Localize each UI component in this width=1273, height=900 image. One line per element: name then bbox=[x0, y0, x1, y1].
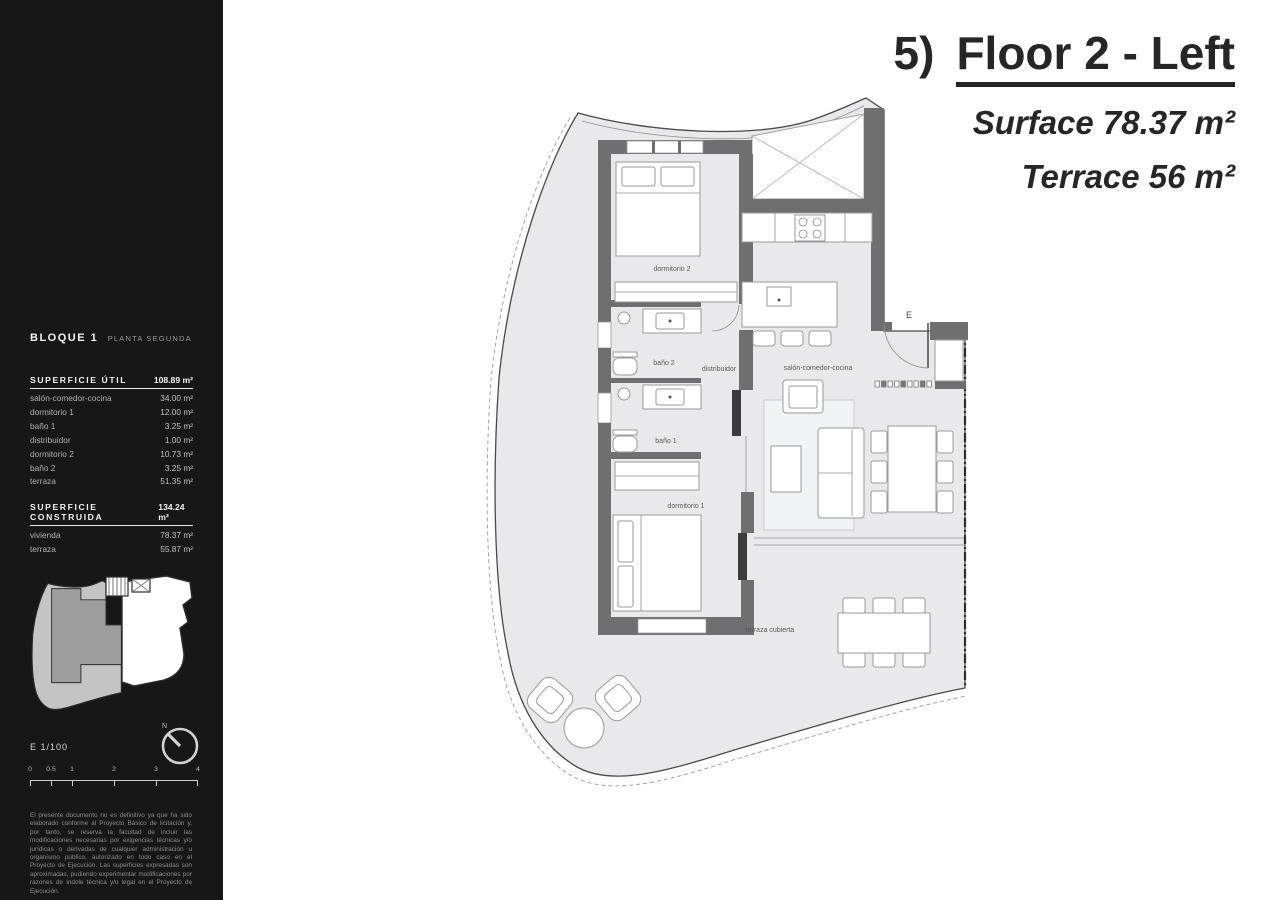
row-name: baño 2 bbox=[30, 462, 55, 476]
row-value: 10.73 m² bbox=[160, 448, 193, 462]
sliding-door-leaf bbox=[732, 390, 741, 436]
bed-dormitorio2 bbox=[616, 162, 700, 256]
row-value: 34.00 m² bbox=[160, 392, 193, 406]
entrance-closet bbox=[935, 340, 963, 381]
legal-disclaimer: El presente documento no es definitivo y… bbox=[30, 812, 192, 896]
scale-tick: 3 bbox=[154, 766, 158, 773]
label-entrance: E bbox=[906, 310, 912, 320]
dining-table-set bbox=[871, 426, 953, 513]
table-row: vivienda78.37 m² bbox=[30, 529, 193, 543]
building-key-plan bbox=[16, 570, 208, 715]
table-header: SUPERFICIE CONSTRUIDA 134.24 m² bbox=[30, 502, 193, 526]
table-title: SUPERFICIE ÚTIL bbox=[30, 375, 127, 385]
row-name: dormitorio 2 bbox=[30, 448, 74, 462]
label-dormitorio2: dormitorio 2 bbox=[654, 266, 691, 273]
north-label: N bbox=[162, 723, 167, 730]
table-row: dormitorio 210.73 m² bbox=[30, 448, 193, 462]
row-name: distribuidor bbox=[30, 434, 71, 448]
scale-tick: 4 bbox=[196, 766, 200, 773]
brochure-page: BLOQUE 1 PLANTA SEGUNDA SUPERFICIE ÚTIL … bbox=[0, 0, 1273, 900]
table-row: salón-comedor-cocina34.00 m² bbox=[30, 392, 193, 406]
row-value: 3.25 m² bbox=[165, 462, 193, 476]
sliding-door-leaf bbox=[738, 533, 747, 580]
block-title: BLOQUE 1 bbox=[30, 332, 98, 344]
label-distribuidor: distribuidor bbox=[702, 366, 737, 373]
kitchen-island bbox=[742, 282, 837, 346]
sidebar: BLOQUE 1 PLANTA SEGUNDA SUPERFICIE ÚTIL … bbox=[0, 0, 223, 900]
table-row: terraza51.35 m² bbox=[30, 475, 193, 489]
scale-tick: 2 bbox=[112, 766, 116, 773]
outdoor-dining-set bbox=[838, 598, 930, 667]
table-total: 134.24 m² bbox=[158, 502, 193, 522]
row-name: vivienda bbox=[30, 529, 60, 543]
table-row: terraza55.87 m² bbox=[30, 543, 193, 557]
block-subtitle: PLANTA SEGUNDA bbox=[108, 334, 192, 343]
armchair bbox=[783, 380, 823, 413]
scale-bar: 0 0.5 1 2 3 4 bbox=[30, 766, 198, 792]
row-value: 1.00 m² bbox=[165, 434, 193, 448]
row-value: 78.37 m² bbox=[160, 529, 193, 543]
scale-tick: 0 bbox=[28, 766, 32, 773]
row-name: terraza bbox=[30, 543, 56, 557]
table-row: dormitorio 112.00 m² bbox=[30, 406, 193, 420]
label-bano1: baño 1 bbox=[655, 438, 677, 445]
shaft bbox=[752, 114, 864, 199]
plan-title: Floor 2 - Left bbox=[956, 27, 1235, 87]
wardrobe-dormitorio2 bbox=[615, 282, 737, 302]
label-terraza-cubierta: terraza cubierta bbox=[746, 627, 795, 634]
table-row: baño 23.25 m² bbox=[30, 462, 193, 476]
superficie-construida-table: SUPERFICIE CONSTRUIDA 134.24 m² vivienda… bbox=[30, 502, 193, 557]
wardrobe-dormitorio1 bbox=[615, 462, 699, 490]
coffee-table bbox=[771, 446, 801, 492]
bed-dormitorio1 bbox=[613, 515, 701, 611]
table-header: SUPERFICIE ÚTIL 108.89 m² bbox=[30, 375, 193, 389]
label-dormitorio1: dormitorio 1 bbox=[668, 503, 705, 510]
row-value: 51.35 m² bbox=[160, 475, 193, 489]
scale-label: E 1/100 bbox=[30, 742, 68, 752]
row-name: baño 1 bbox=[30, 420, 55, 434]
shelf-symbol-row bbox=[875, 381, 932, 387]
superficie-util-table: SUPERFICIE ÚTIL 108.89 m² salón-comedor-… bbox=[30, 375, 193, 489]
row-name: salón-comedor-cocina bbox=[30, 392, 112, 406]
row-name: dormitorio 1 bbox=[30, 406, 74, 420]
floor-plan: dormitorio 2 baño 2 distribuidor baño 1 … bbox=[478, 85, 990, 800]
north-compass-icon: N bbox=[152, 718, 204, 770]
scale-tick: 1 bbox=[70, 766, 74, 773]
block-heading: BLOQUE 1 PLANTA SEGUNDA bbox=[30, 328, 192, 346]
row-value: 12.00 m² bbox=[160, 406, 193, 420]
row-name: terraza bbox=[30, 475, 56, 489]
round-side-table bbox=[564, 708, 604, 748]
row-value: 3.25 m² bbox=[165, 420, 193, 434]
label-salon: salón-comedor-cocina bbox=[784, 365, 853, 372]
scale-tick: 0.5 bbox=[46, 766, 55, 773]
plan-number: 5) bbox=[894, 27, 935, 79]
table-row: distribuidor1.00 m² bbox=[30, 434, 193, 448]
label-bano2: baño 2 bbox=[653, 360, 675, 367]
page-title: 5)Floor 2 - Left bbox=[700, 26, 1235, 80]
kitchen-counter bbox=[742, 213, 872, 242]
table-total: 108.89 m² bbox=[154, 375, 193, 385]
sofa bbox=[818, 428, 864, 518]
table-row: baño 13.25 m² bbox=[30, 420, 193, 434]
table-title: SUPERFICIE CONSTRUIDA bbox=[30, 502, 158, 522]
row-value: 55.87 m² bbox=[160, 543, 193, 557]
